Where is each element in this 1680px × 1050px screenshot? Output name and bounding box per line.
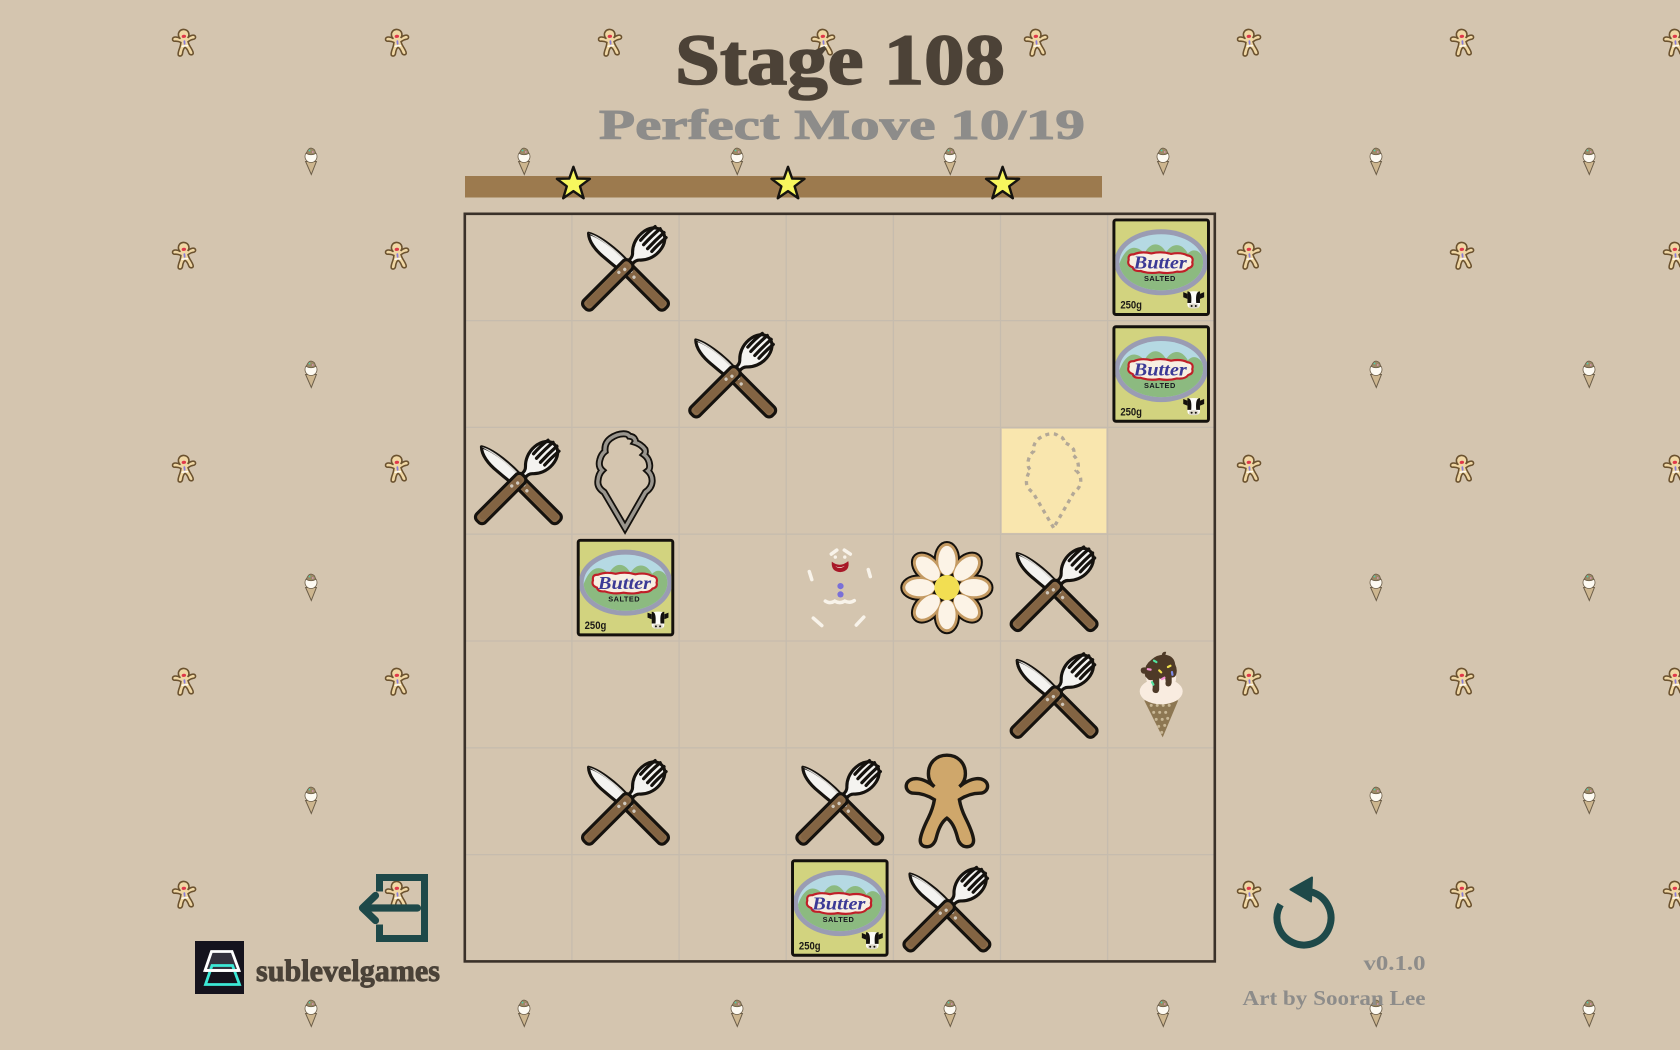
svg-text:Art by Sooran Lee: Art by Sooran Lee (1243, 986, 1426, 1010)
svg-text:Stage 108: Stage 108 (675, 20, 1005, 100)
svg-text:sublevelgames: sublevelgames (256, 953, 440, 988)
svg-text:Perfect Move 10/19: Perfect Move 10/19 (599, 103, 1085, 149)
svg-text:v0.1.0: v0.1.0 (1364, 951, 1426, 975)
